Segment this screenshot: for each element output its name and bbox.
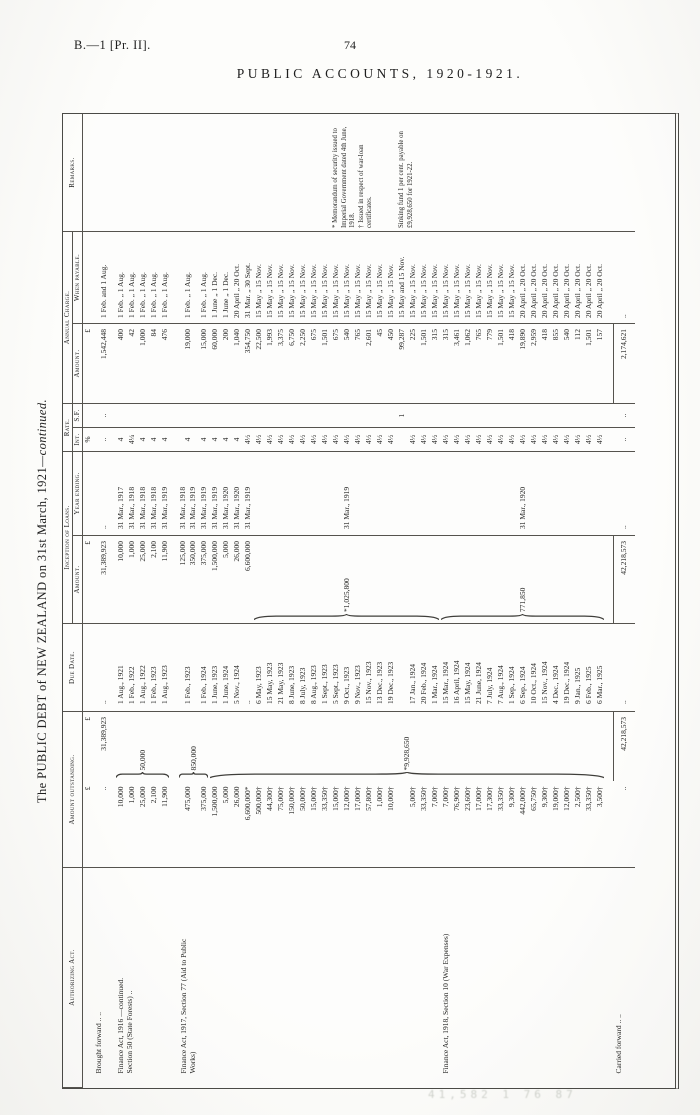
- cell-pay: 15 May „ 15 Nov.: [319, 231, 330, 323]
- cell-rem: [297, 113, 308, 231]
- cell-ch: [605, 323, 613, 403]
- cell-rem: [605, 113, 613, 231]
- cell-ch: 19,000: [178, 323, 198, 403]
- cell-due: 21 June, 1924: [473, 623, 484, 711]
- cell-inc: 375,000: [198, 535, 209, 623]
- cell-ri: 4: [148, 427, 159, 451]
- cell-act: [83, 868, 94, 1088]
- cell-rem: [198, 113, 209, 231]
- cell-inc: 5,000: [220, 535, 231, 623]
- cell-rs: [242, 403, 253, 427]
- table-title-main: The PUBLIC DEBT of NEW ZEALAND on 31st M…: [35, 467, 49, 803]
- cell-inc: 42,218,573: [613, 535, 635, 623]
- header-year-ending: Year ending.: [73, 451, 83, 535]
- cell-ri: 4: [198, 427, 209, 451]
- cell-rs: [517, 403, 528, 427]
- header-when-payable: When payable.: [73, 231, 83, 323]
- cell-inc: £: [83, 535, 94, 623]
- cell-ch: 855: [550, 323, 561, 403]
- cell-amt: ..: [93, 782, 115, 868]
- cell-rem: [275, 113, 286, 231]
- cell-amt: 2,500†: [572, 782, 583, 868]
- cell-yr: [605, 451, 613, 535]
- header-remarks: Remarks.: [63, 113, 83, 231]
- cell-rem: [572, 113, 583, 231]
- cell-ri: 4½: [418, 427, 429, 451]
- accounts-heading: PUBLIC ACCOUNTS, 1920-1921.: [0, 66, 700, 82]
- cell-ch: 400: [115, 323, 126, 403]
- cell-yr: ..: [93, 451, 115, 535]
- cell-due: 9 Oct., 1923: [341, 623, 352, 711]
- cell-rs: [275, 403, 286, 427]
- cell-tot: 42,218,573: [613, 711, 635, 781]
- cell-inc: 125,000350,000: [178, 535, 198, 623]
- cell-ri: 4½: [528, 427, 539, 451]
- cell-rs: [407, 403, 418, 427]
- cell-ch: 315: [440, 323, 451, 403]
- cell-ri: 4½: [506, 427, 517, 451]
- cell-ch: 225: [407, 323, 418, 403]
- cell-pay: 15 May „ 15 Nov.: [341, 231, 352, 323]
- cell-pay: 1 June „ 1 Dec.: [220, 231, 231, 323]
- cell-ri: [605, 427, 613, 451]
- cell-ri: 4½: [242, 427, 253, 451]
- cell-amt: 375,000: [198, 782, 209, 868]
- cell-act: [170, 868, 178, 1088]
- cell-pay: 20 April „ 20 Oct.: [231, 231, 242, 323]
- cell-rs: [495, 403, 506, 427]
- cell-ri: 4½: [429, 427, 440, 451]
- cell-act: Brought forward .. ..: [93, 868, 115, 1088]
- cell-ri: 4½: [253, 427, 264, 451]
- cell-amt: 33,350†: [319, 782, 330, 868]
- cell-ch: 42: [126, 323, 137, 403]
- cell-yr: 31 Mar., 1920: [440, 451, 605, 535]
- cell-ch: 15,000: [198, 323, 209, 403]
- cell-amt: 33,350†: [583, 782, 594, 868]
- cell-due: 6 Sep., 1924: [517, 623, 528, 711]
- header-inception-amount: Amount.: [73, 535, 83, 623]
- cell-ri: 4½: [286, 427, 297, 451]
- cell-rs: [484, 403, 495, 427]
- cell-ch: 1,501: [319, 323, 330, 403]
- cell-ch: 779: [484, 323, 495, 403]
- cell-inc: [605, 535, 613, 623]
- cell-ri: 4: [231, 427, 242, 451]
- cell-rs: [473, 403, 484, 427]
- cell-rem: [93, 113, 115, 231]
- table-title: The PUBLIC DEBT of NEW ZEALAND on 31st M…: [30, 112, 56, 1090]
- cell-amt: 17,000†: [473, 782, 484, 868]
- cell-amt: 7,000†: [429, 782, 440, 868]
- cell-due: [396, 623, 407, 711]
- cell-ri: 4½: [385, 427, 396, 451]
- cell-rs: [385, 403, 396, 427]
- cell-amt: 12,000†: [561, 782, 572, 868]
- cell-pay: 1 Feb. „ 1 Aug.: [148, 231, 159, 323]
- cell-ch: 19,890: [517, 323, 528, 403]
- cell-pay: 1 Feb. „ 1 Aug.: [159, 231, 170, 323]
- cell-due: 5 Nov., 1924: [231, 623, 242, 711]
- header-annual-charge: Annual Charge.: [63, 231, 73, 403]
- cell-ch: 765: [352, 323, 363, 403]
- cell-ri: 4½: [319, 427, 330, 451]
- cell-rs: [115, 403, 126, 427]
- cell-amt: 1,000†: [374, 782, 385, 868]
- cell-ch: 1,542,448: [93, 323, 115, 403]
- cell-tot: 50,000: [115, 711, 170, 781]
- cell-ri: 4½: [462, 427, 473, 451]
- cell-pay: 15 May „ 15 Nov.: [297, 231, 308, 323]
- cell-due: 1 Feb., 1923: [148, 623, 159, 711]
- cell-ch: 476: [159, 323, 170, 403]
- cell-yr: 31 Mar., 1919: [242, 451, 253, 535]
- cell-amt: 12,000†: [341, 782, 352, 868]
- cell-due: 15 May, 1924: [462, 623, 473, 711]
- cell-pay: 15 May „ 15 Nov.: [264, 231, 275, 323]
- cell-due: 1 Feb., 1922: [126, 623, 137, 711]
- cell-amt: 17,000†: [352, 782, 363, 868]
- cell-rem: [319, 113, 330, 231]
- cell-ch: 1,501: [583, 323, 594, 403]
- table-body: £££%£Brought forward .. ....31,389,923..…: [83, 113, 636, 1087]
- cell-pay: 15 May „ 15 Nov.: [330, 231, 341, 323]
- cell-pay: 20 April „ 20 Oct.: [528, 231, 539, 323]
- cell-rs: [429, 403, 440, 427]
- cell-due: ..: [242, 623, 253, 711]
- cell-amt: 33,350†: [418, 782, 429, 868]
- cell-ri: 4½: [517, 427, 528, 451]
- cell-rem: [583, 113, 594, 231]
- header-rate: Rate.: [63, 403, 73, 451]
- header-rate-sf: S.F.: [73, 403, 83, 427]
- cell-amt: 76,900†: [451, 782, 462, 868]
- cell-due: 15 Nov., 1923: [363, 623, 374, 711]
- cell-ch: 6,750: [286, 323, 297, 403]
- cell-due: 1 Feb., 1923: [178, 623, 198, 711]
- cell-amt: 75,000†: [275, 782, 286, 868]
- cell-inc: 31,389,923: [93, 535, 115, 623]
- cell-pay: 1 Feb. „ 1 Aug.: [198, 231, 209, 323]
- cell-pay: 15 May „ 15 Nov.: [253, 231, 264, 323]
- cell-ri: 4½: [572, 427, 583, 451]
- cell-tot: [605, 711, 613, 781]
- cell-inc: [170, 535, 178, 623]
- cell-amt: 1,000: [126, 782, 137, 868]
- cell-rs: [341, 403, 352, 427]
- cell-yr: 31 Mar., 1920: [220, 451, 231, 535]
- cell-ch: 99,287: [396, 323, 407, 403]
- cell-due: 1 June, 1923: [209, 623, 220, 711]
- cell-due: 7 July, 1924: [484, 623, 495, 711]
- cell-amt: 19,000†: [550, 782, 561, 868]
- header-authorizing-act: Authorizing Act.: [63, 868, 83, 1088]
- cell-rs: [264, 403, 275, 427]
- cell-rs: [572, 403, 583, 427]
- cell-ch: 112: [572, 323, 583, 403]
- print-showthrough-artifact: 41,582 1 76 87: [428, 1088, 690, 1101]
- cell-amt: 150,000†: [286, 782, 297, 868]
- cell-pay: 20 April „ 20 Oct.: [539, 231, 550, 323]
- cell-amt: 3,500†: [594, 782, 605, 868]
- cell-ri: 4½: [275, 427, 286, 451]
- cell-yr: ..: [613, 451, 635, 535]
- cell-rs: [231, 403, 242, 427]
- cell-amt: 442,000†: [517, 782, 528, 868]
- cell-ri: %: [83, 427, 94, 451]
- cell-rem: [242, 113, 253, 231]
- cell-yr: [170, 451, 178, 535]
- cell-yr: 31 Mar., 1919: [209, 451, 220, 535]
- cell-ch: 45: [374, 323, 385, 403]
- cell-due: 13 Dec., 1923: [374, 623, 385, 711]
- cell-amt: [170, 782, 178, 868]
- cell-amt: 25,000: [137, 782, 148, 868]
- cell-amt: 23,600†: [462, 782, 473, 868]
- cell-pay: 20 April „ 20 Oct.: [550, 231, 561, 323]
- cell-pay: 20 April „ 20 Oct.: [517, 231, 528, 323]
- cell-rem: [170, 113, 178, 231]
- cell-amt: 15,000†: [308, 782, 319, 868]
- cell-act: Finance Act, 1917, Section 77 (Aid to Pu…: [178, 868, 440, 1088]
- cell-due: [170, 623, 178, 711]
- cell-amt: 10,000: [115, 782, 126, 868]
- cell-pay: [170, 231, 178, 323]
- cell-rem: [137, 113, 148, 231]
- cell-rs: [440, 403, 451, 427]
- cell-pay: 15 May „ 15 Nov.: [418, 231, 429, 323]
- cell-rs: [170, 403, 178, 427]
- cell-amt: £: [83, 782, 94, 868]
- cell-yr: 31 Mar., 1918: [137, 451, 148, 535]
- cell-amt: [605, 782, 613, 868]
- public-debt-table: Authorizing Act. Amount outstanding. Due…: [63, 113, 635, 1088]
- cell-act: [605, 868, 613, 1088]
- cell-pay: 15 May „ 15 Nov.: [495, 231, 506, 323]
- cell-amt: 5,000†: [407, 782, 418, 868]
- cell-ch: 540: [561, 323, 572, 403]
- cell-ri: ..: [93, 427, 115, 451]
- cell-inc: 1,500,000: [209, 535, 220, 623]
- cell-ch: 2,174,621: [613, 323, 635, 403]
- cell-pay: 15 May „ 15 Nov.: [407, 231, 418, 323]
- cell-rem: [594, 113, 605, 231]
- cell-due: 1 Feb., 1924: [198, 623, 209, 711]
- cell-ri: 4½: [264, 427, 275, 451]
- cell-pay: 15 May „ 15 Nov.: [352, 231, 363, 323]
- cell-pay: [83, 231, 94, 323]
- cell-ri: [170, 427, 178, 451]
- cell-pay: 15 May and 15 Nov.: [396, 231, 407, 323]
- cell-rem: [286, 113, 297, 231]
- cell-pay: 20 April „ 20 Oct.: [594, 231, 605, 323]
- cell-rs: [594, 403, 605, 427]
- cell-due: 15 May, 1923: [264, 623, 275, 711]
- cell-due: [83, 623, 94, 711]
- cell-yr: 31 Mar., 1917: [115, 451, 126, 535]
- cell-yr: [83, 451, 94, 535]
- cell-ri: 4½: [451, 427, 462, 451]
- cell-inc: 771,850: [440, 535, 605, 623]
- cell-pay: 15 May „ 15 Nov.: [275, 231, 286, 323]
- cell-ri: 4½: [484, 427, 495, 451]
- cell-amt: 9,300†: [539, 782, 550, 868]
- cell-act: Finance Act, 1916 —continued.Section 50 …: [115, 868, 170, 1088]
- cell-ri: 4½: [341, 427, 352, 451]
- cell-ri: 4½: [363, 427, 374, 451]
- cell-pay: 20 April „ 20 Oct.: [583, 231, 594, 323]
- cell-inc: 2,100: [148, 535, 159, 623]
- cell-rs: [550, 403, 561, 427]
- cell-inc: 10,000: [115, 535, 126, 623]
- cell-due: 19 Dec., 1923: [385, 623, 396, 711]
- cell-inc: 26,000: [231, 535, 242, 623]
- cell-due: 21 May, 1923: [275, 623, 286, 711]
- cell-ri: 4½: [539, 427, 550, 451]
- cell-amt: 7,000†: [440, 782, 451, 868]
- cell-rem: [613, 113, 635, 231]
- cell-rs: [308, 403, 319, 427]
- cell-pay: 15 May „ 15 Nov.: [385, 231, 396, 323]
- cell-rem: [484, 113, 495, 231]
- cell-pay: ..: [613, 231, 635, 323]
- cell-ch: 1,040: [231, 323, 242, 403]
- cell-yr: 31 Mar., 1918: [126, 451, 137, 535]
- table-title-continued: —continued.: [35, 399, 49, 467]
- cell-ri: 4½: [352, 427, 363, 451]
- cell-ch: 418: [506, 323, 517, 403]
- cell-amt: 5,000: [220, 782, 231, 868]
- cell-ri: 4½: [297, 427, 308, 451]
- cell-rem: [253, 113, 264, 231]
- cell-rem: Sinking fund 1 per cent. payable on £9,9…: [396, 113, 484, 231]
- cell-amt: 57,800†: [363, 782, 374, 868]
- cell-due: 1 June, 1924: [220, 623, 231, 711]
- cell-amt: 500,000†: [253, 782, 264, 868]
- cell-amt: 50,000†: [297, 782, 308, 868]
- cell-ch: [170, 323, 178, 403]
- table-header: Authorizing Act. Amount outstanding. Due…: [63, 113, 83, 1087]
- cell-amt: 15,000†: [330, 782, 341, 868]
- cell-ch: 1,062: [462, 323, 473, 403]
- cell-rs: [418, 403, 429, 427]
- cell-ch: 1,000: [137, 323, 148, 403]
- cell-pay: 15 May „ 15 Nov.: [484, 231, 495, 323]
- rotated-table-region: The PUBLIC DEBT of NEW ZEALAND on 31st M…: [30, 112, 685, 1090]
- cell-ri: 4½: [374, 427, 385, 451]
- cell-ri: 4: [178, 427, 198, 451]
- cell-ri: 4½: [495, 427, 506, 451]
- cell-pay: 15 May „ 15 Nov.: [374, 231, 385, 323]
- cell-due: 16 April, 1924: [451, 623, 462, 711]
- cell-ch: 22,500: [253, 323, 264, 403]
- cell-ri: 4: [137, 427, 148, 451]
- cell-due: 7 Aug., 1924: [495, 623, 506, 711]
- header-due-date: Due Date.: [63, 623, 83, 711]
- cell-ri: 4½: [550, 427, 561, 451]
- cell-ri: 4½: [594, 427, 605, 451]
- cell-pay: 15 May „ 15 Nov.: [440, 231, 451, 323]
- cell-ch: 1,501: [418, 323, 429, 403]
- cell-yr: 31 Mar., 1920: [231, 451, 242, 535]
- cell-rem: [159, 113, 170, 231]
- cell-ri: 4: [159, 427, 170, 451]
- cell-rem: [528, 113, 539, 231]
- cell-rem: [561, 113, 572, 231]
- cell-amt: 11,900: [159, 782, 170, 868]
- header-amount-outstanding: Amount outstanding.: [63, 711, 83, 867]
- cell-due: 9 Jan., 1925: [572, 623, 583, 711]
- cell-rs: [126, 403, 137, 427]
- cell-rs: [451, 403, 462, 427]
- cell-ch: 2,601: [363, 323, 374, 403]
- cell-ch: 3,461: [451, 323, 462, 403]
- cell-rs: [539, 403, 550, 427]
- cell-ri: 4½: [407, 427, 418, 451]
- cell-due: 8 Aug., 1923: [308, 623, 319, 711]
- cell-rs: [330, 403, 341, 427]
- cell-ch: £: [83, 323, 94, 403]
- cell-due: 19 Dec., 1924: [561, 623, 572, 711]
- cell-pay: 1 Feb. „ 1 Aug.: [178, 231, 198, 323]
- cell-act: Finance Act, 1918, Section 10 (War Expen…: [440, 868, 605, 1088]
- cell-ch: 315: [429, 323, 440, 403]
- page-number: 74: [0, 38, 700, 53]
- cell-rs: [253, 403, 264, 427]
- cell-rem: [264, 113, 275, 231]
- cell-amt: 9,300†: [506, 782, 517, 868]
- cell-inc: 25,000: [137, 535, 148, 623]
- cell-ri: 4½: [440, 427, 451, 451]
- cell-pay: 31 Mar. „ 30 Sept.: [242, 231, 253, 323]
- cell-ri: [396, 427, 407, 451]
- cell-tot: 31,389,923: [93, 711, 115, 781]
- cell-tot: [170, 711, 178, 781]
- cell-ri: 4¼: [126, 427, 137, 451]
- cell-rs: [297, 403, 308, 427]
- cell-pay: 1 June „ 1 Dec.: [209, 231, 220, 323]
- cell-due: 8 June, 1923: [286, 623, 297, 711]
- cell-tot: 850,000: [178, 711, 209, 781]
- cell-yr: 31 Mar., 191831 Mar., 1919: [178, 451, 198, 535]
- cell-pay: 15 May „ 15 Nov.: [308, 231, 319, 323]
- cell-rs: [561, 403, 572, 427]
- cell-due: 4 Dec., 1924: [550, 623, 561, 711]
- cell-due: [605, 623, 613, 711]
- cell-rem: [126, 113, 137, 231]
- cell-rs: [506, 403, 517, 427]
- cell-pay: 20 April „ 20 Oct.: [561, 231, 572, 323]
- cell-yr: 31 Mar., 1918: [148, 451, 159, 535]
- cell-rem: [83, 113, 94, 231]
- cell-due: ..: [93, 623, 115, 711]
- cell-amt: 10,000†: [385, 782, 396, 868]
- cell-ch: 540: [341, 323, 352, 403]
- cell-ri: 4½: [330, 427, 341, 451]
- cell-ch: 1,993: [264, 323, 275, 403]
- cell-tot: £: [83, 711, 94, 781]
- cell-rs: [83, 403, 94, 427]
- cell-ch: 675: [330, 323, 341, 403]
- cell-inc: 1,000: [126, 535, 137, 623]
- cell-amt: 6,600,000*: [242, 782, 253, 868]
- cell-rs: [528, 403, 539, 427]
- cell-rs: ..: [93, 403, 115, 427]
- cell-pay: 15 May „ 15 Nov.: [286, 231, 297, 323]
- cell-rs: [198, 403, 209, 427]
- cell-rem: [506, 113, 517, 231]
- cell-rs: ..: [613, 403, 635, 427]
